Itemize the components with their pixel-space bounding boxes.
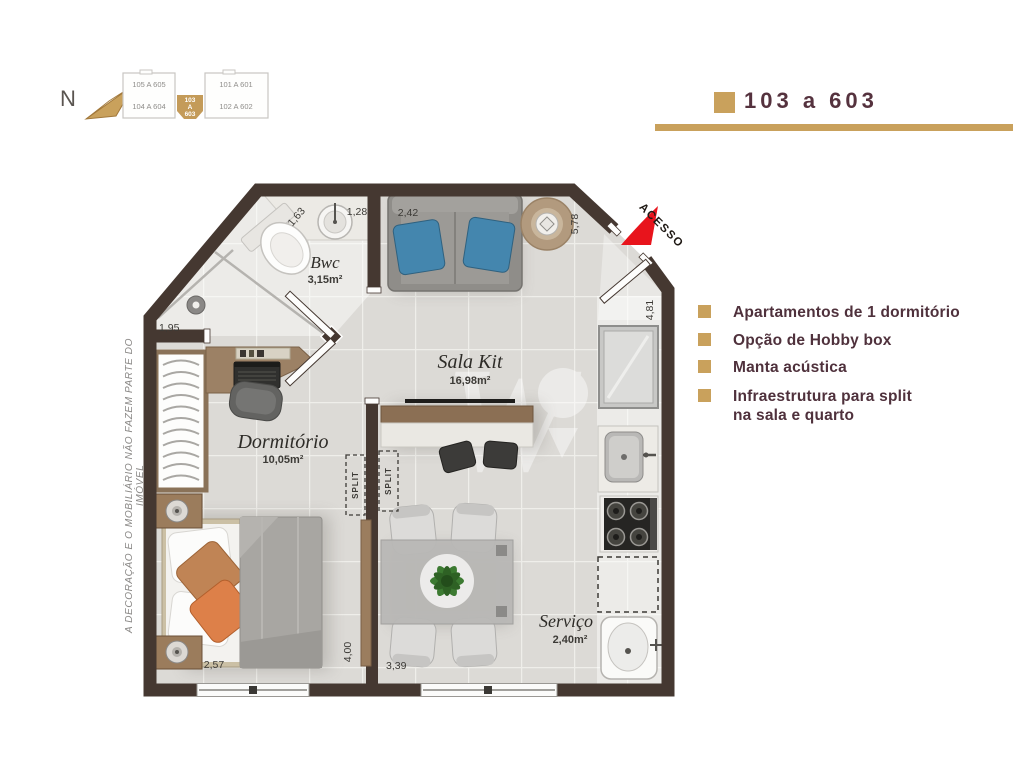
tv-icon (405, 399, 515, 403)
dimension-label: 1,95 (159, 322, 180, 334)
nightstand (153, 494, 202, 528)
dimension-label: 3,39 (386, 660, 407, 672)
dimension-label: 4,00 (342, 642, 354, 663)
kitchen-sink-counter (598, 426, 658, 492)
window (197, 684, 309, 697)
bar-stool (483, 441, 518, 470)
nightstand (153, 636, 202, 669)
plant-icon (420, 554, 474, 608)
sofa-cushion (392, 219, 445, 276)
room-label-sala: Sala Kit (437, 351, 502, 373)
fridge-icon (599, 326, 658, 408)
dimension-label: 2,42 (398, 207, 419, 219)
side-table (521, 198, 573, 250)
svg-text:10,05m²: 10,05m² (263, 454, 304, 466)
stove-icon (600, 496, 658, 552)
floor-plan: W (0, 0, 1013, 758)
sofa-cushion (462, 217, 515, 274)
dimension-label: 1,28 (347, 206, 368, 218)
svg-text:2,40m²: 2,40m² (553, 634, 588, 646)
dimension-label: 4,81 (644, 300, 656, 321)
room-label-servico: Serviço (539, 611, 593, 631)
room-label-bwc: Bwc (310, 253, 340, 272)
floor-plan-page: N 105 A 605 104 A 604 101 A 601 102 A 60… (0, 0, 1013, 758)
svg-text:3,15m²: 3,15m² (308, 274, 343, 286)
room-label-dormitorio: Dormitório (236, 431, 328, 453)
dimension-label: 5,78 (569, 214, 581, 235)
laundry-tub-icon (601, 617, 662, 679)
svg-text:SPLIT: SPLIT (351, 471, 360, 499)
wardrobe (156, 352, 206, 490)
dimension-label: 2,57 (204, 659, 225, 671)
sliding-panel (361, 520, 371, 666)
svg-text:SPLIT: SPLIT (384, 467, 393, 495)
svg-text:16,98m²: 16,98m² (450, 375, 491, 387)
window (421, 684, 557, 697)
